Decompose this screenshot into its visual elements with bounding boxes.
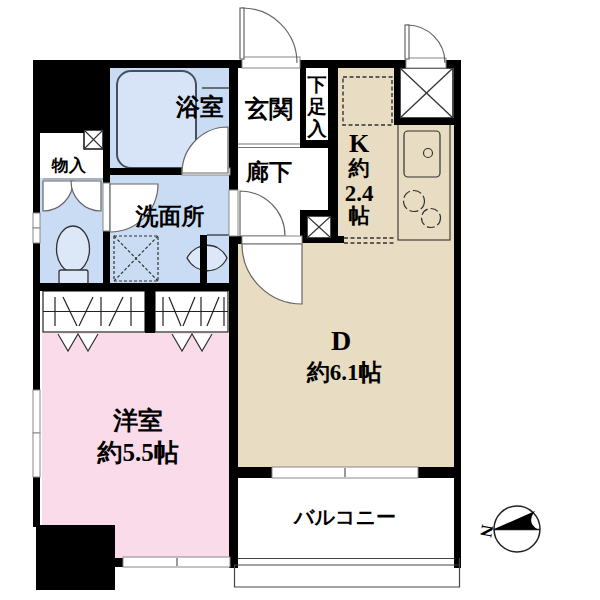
hallway-label: 廊下 <box>245 159 292 185</box>
dining-balcony-window <box>272 467 418 478</box>
svg-text:帖: 帖 <box>349 204 370 228</box>
toilet-window <box>33 213 40 243</box>
toilet-door-opening <box>103 183 110 231</box>
bathroom-label: 浴室 <box>175 93 224 120</box>
entrance-label: 玄関 <box>244 96 293 122</box>
meter-box-door-arc <box>407 25 445 63</box>
svg-text:入: 入 <box>307 118 328 139</box>
western-room-balcony-window <box>123 557 230 567</box>
entrance-door-arc <box>242 8 297 63</box>
entrance-door-sill <box>242 57 300 68</box>
western-room-side-window <box>33 390 40 477</box>
dining-door-sill <box>242 236 302 244</box>
shoe-storage-label: 下 足 入 <box>307 74 328 139</box>
balcony-railing <box>234 558 460 587</box>
meter-box-door-sill <box>406 58 446 68</box>
kitchen-counter <box>398 123 450 240</box>
washroom-door-opening <box>229 190 238 236</box>
svg-text:約: 約 <box>348 156 370 180</box>
svg-text:2.4: 2.4 <box>345 181 374 206</box>
washroom-label: 洗面所 <box>135 204 205 229</box>
meter-box <box>400 68 453 118</box>
storage-label: 物入 <box>51 156 87 175</box>
pipe-shaft-box <box>307 216 331 238</box>
svg-text:下: 下 <box>307 74 327 95</box>
storage-shaft-box <box>84 130 103 149</box>
dining-size-label: 約6.1帖 <box>306 360 382 385</box>
meter-box-door-leaf <box>405 25 409 59</box>
svg-text:K: K <box>349 129 370 158</box>
washroom-hallway-door <box>240 191 285 236</box>
balcony-label: バルコニー <box>293 506 396 528</box>
compass-north-label: N <box>476 523 497 539</box>
western-room-label: 洋室 <box>112 407 163 434</box>
bottom-left-block <box>36 525 115 590</box>
svg-text:足: 足 <box>307 96 327 117</box>
entrance-step-line <box>238 144 300 148</box>
entrance-door-leaf <box>240 8 244 59</box>
dining-label: D <box>331 325 351 356</box>
toilet-fixture <box>57 226 90 289</box>
compass: N <box>476 506 540 552</box>
floor-plan: N 玄関 下 足 入 廊下 浴室 物入 洗面所 K 約 2.4 帖 D 約6.1… <box>0 0 600 600</box>
pipe-space-block <box>36 63 110 133</box>
western-room-size-label: 約5.5帖 <box>96 439 178 466</box>
